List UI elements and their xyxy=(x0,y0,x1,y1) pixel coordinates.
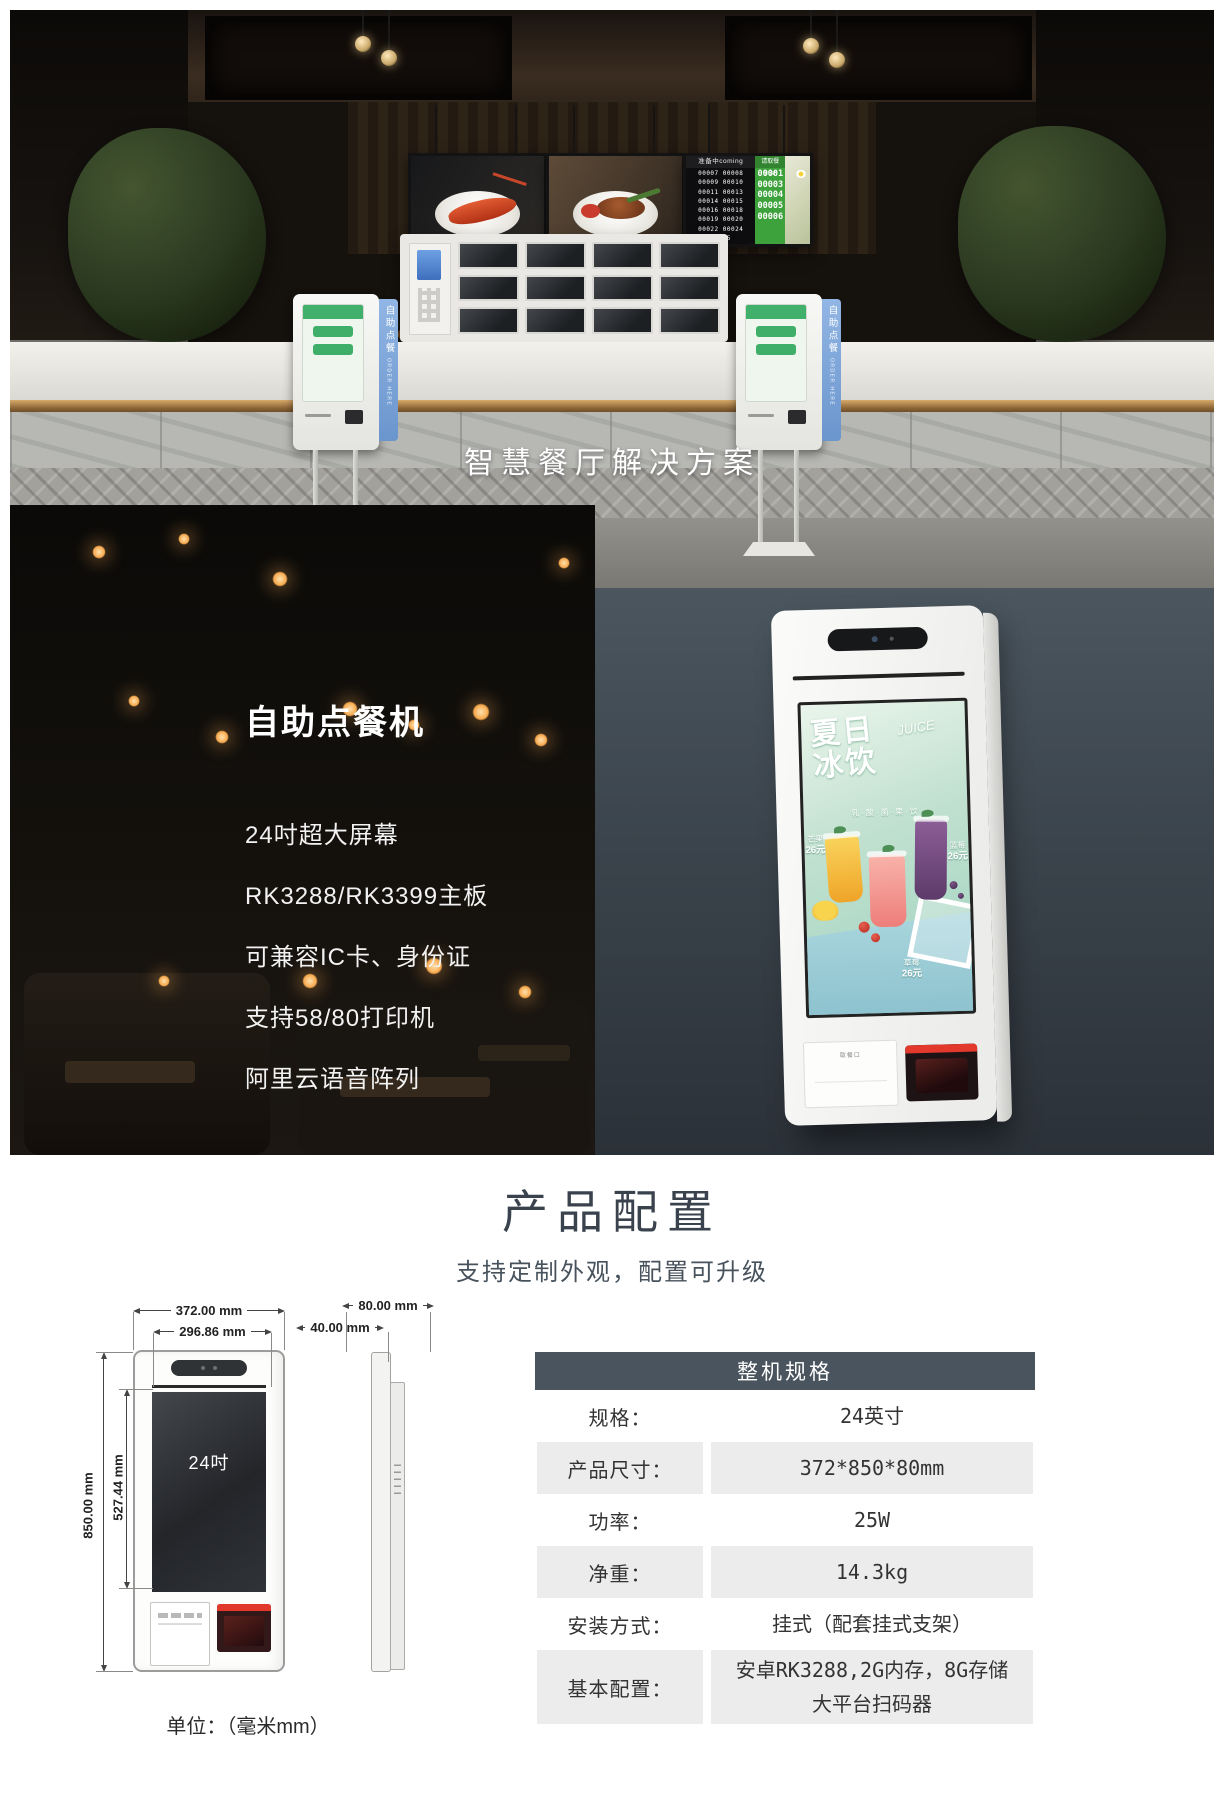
feature-item: 支持58/80打印机 xyxy=(245,998,488,1033)
spec-value: 14.3kg xyxy=(711,1546,1033,1598)
order-here-banner: 自助点餐 ORDER HERE xyxy=(379,299,398,441)
dimension-height-outer-line xyxy=(99,1352,108,1672)
locker-control-panel xyxy=(409,243,451,335)
pendant-light xyxy=(836,10,838,54)
hero-title: 智慧餐厅解决方案 xyxy=(10,438,1214,482)
printer-panel xyxy=(150,1602,210,1666)
spec-label: 规格： xyxy=(537,1390,703,1442)
feature-item: 阿里云语音阵列 xyxy=(245,1059,488,1094)
front-view-drawing: 24吋 xyxy=(133,1350,285,1672)
config-title: 产品配置 xyxy=(0,1176,1224,1242)
dimension-width-screen: 296.86 mm xyxy=(153,1324,272,1339)
spec-row: 功率： 25W xyxy=(535,1494,1035,1546)
pendant-light xyxy=(810,10,812,40)
kiosk-floor-base xyxy=(743,542,815,556)
pendant-light xyxy=(362,10,364,38)
plant-right xyxy=(958,126,1166,342)
banner-text-en: ORDER HERE xyxy=(829,358,835,406)
kiosk-display: 夏日 冰饮 JUICE 乳·酸·菌·果·饮 芒果26元 xyxy=(797,698,976,1019)
ceiling-panel xyxy=(205,16,512,100)
spec-label: 产品尺寸： xyxy=(537,1442,703,1494)
camera-bar xyxy=(827,627,928,652)
kiosk-screen xyxy=(745,304,807,402)
price-tag-mango: 芒果26元 xyxy=(804,835,827,858)
product-title: 自助点餐机 xyxy=(245,695,425,744)
poster-title: 夏日 冰饮 xyxy=(809,712,899,783)
banner-text-cn: 自助点餐 xyxy=(382,305,396,355)
queue-coming-header: 准备中coming xyxy=(686,156,755,168)
queue-finish-header: 请取餐finish xyxy=(755,156,785,168)
spec-label: 基本配置： xyxy=(537,1650,703,1724)
scanner-window xyxy=(345,410,363,424)
unit-label: 单位：（毫米mm） xyxy=(128,1710,368,1739)
pendant-light xyxy=(388,10,390,52)
feature-item: RK3288/RK3399主板 xyxy=(245,876,488,911)
mango-fruit xyxy=(812,900,839,921)
spec-row: 安装方式： 挂式（配套挂式支架） xyxy=(535,1598,1035,1650)
queue-finish-panel: 请取餐finish 00001 00003 00004 00005 00006 xyxy=(755,156,785,244)
queue-number-board: 准备中coming 00007 00008 00009 00010 00011 … xyxy=(683,153,813,247)
spec-row: 基本配置： 安卓RK3288,2G内存，8G存储 大平台扫码器 xyxy=(535,1650,1035,1724)
dimension-depth-body: 40.00 mm xyxy=(296,1320,384,1335)
locker-keypad xyxy=(418,288,440,322)
screen-area: 24吋 xyxy=(152,1392,266,1592)
spec-table-header: 整机规格 xyxy=(535,1352,1035,1390)
spec-label: 净重： xyxy=(537,1546,703,1598)
top-slot xyxy=(793,672,965,681)
config-subtitle: 支持定制外观，配置可升级 xyxy=(0,1252,1224,1287)
product-intro-panel: 自助点餐机 24吋超大屏幕 RK3288/RK3399主板 可兼容IC卡、身份证… xyxy=(10,505,595,1155)
queue-board-food-photo xyxy=(785,156,810,244)
self-order-kiosk-right: 自助点餐 ORDER HERE xyxy=(736,294,822,450)
menu-board-steak xyxy=(546,153,685,247)
printer-slot xyxy=(305,414,331,417)
receipt-printer-panel: 取餐口 xyxy=(803,1040,899,1109)
steak-dish-photo xyxy=(549,156,682,244)
hero-restaurant-image: 准备中coming 00007 00008 00009 00010 00011 … xyxy=(10,10,1214,588)
spec-value: 25W xyxy=(711,1494,1033,1546)
screen-size-label: 24吋 xyxy=(188,1449,229,1475)
product-kiosk: 夏日 冰饮 JUICE 乳·酸·菌·果·饮 芒果26元 xyxy=(771,605,997,1126)
top-slot xyxy=(152,1385,266,1388)
dimension-width-outer: 372.00 mm xyxy=(133,1303,285,1318)
strawberry-drink-cup xyxy=(869,854,907,927)
side-view-drawing xyxy=(371,1352,409,1674)
spec-table: 整机规格 规格： 24英寸 产品尺寸： 372*850*80mm 功率： 25W… xyxy=(535,1352,1035,1724)
spec-row: 规格： 24英寸 xyxy=(535,1390,1035,1442)
spec-label: 功率： xyxy=(537,1494,703,1546)
dimension-depth-total: 80.00 mm xyxy=(342,1298,434,1313)
queue-coming-numbers: 00007 00008 00009 00010 00011 00013 0001… xyxy=(686,168,755,244)
feature-list: 24吋超大屏幕 RK3288/RK3399主板 可兼容IC卡、身份证 支持58/… xyxy=(245,815,488,1120)
dimension-height-outer: 850.00 mm xyxy=(81,1461,96,1551)
scanner-window xyxy=(217,1604,271,1652)
product-photo-panel: 夏日 冰饮 JUICE 乳·酸·菌·果·饮 芒果26元 xyxy=(595,588,1214,1155)
spec-row: 净重： 14.3kg xyxy=(535,1546,1035,1598)
spec-value: 24英寸 xyxy=(711,1390,1033,1442)
price-tag-blueberry: 蓝莓26元 xyxy=(946,841,969,864)
spec-row: 产品尺寸： 372*850*80mm xyxy=(535,1442,1035,1494)
scanner-window xyxy=(788,410,806,424)
queue-finish-numbers: 00001 00003 00004 00005 00006 xyxy=(755,168,785,244)
camera-bar xyxy=(171,1360,247,1376)
lobster-dish-photo xyxy=(411,156,544,244)
plant-left xyxy=(68,128,266,342)
banner-text-en: ORDER HERE xyxy=(386,358,392,406)
poster-juice-script: JUICE xyxy=(896,717,936,738)
dimension-height-screen: 527.44 mm xyxy=(111,1443,126,1533)
spec-value: 372*850*80mm xyxy=(711,1442,1033,1494)
menu-board-lobster xyxy=(408,153,547,247)
scanner-window: 扫码区 xyxy=(905,1043,979,1101)
restaurant-table xyxy=(478,1045,570,1061)
spec-value: 挂式（配套挂式支架） xyxy=(711,1598,1033,1650)
printer-slot xyxy=(748,414,774,417)
self-order-kiosk-left: 自助点餐 ORDER HERE xyxy=(293,294,379,450)
mango-drink-cup xyxy=(824,835,863,904)
feature-item: 可兼容IC卡、身份证 xyxy=(245,937,488,972)
locker-screen xyxy=(417,250,441,280)
locker-cells xyxy=(458,242,720,334)
blueberry-drink-cup xyxy=(915,820,948,900)
pickup-locker-cabinet xyxy=(400,234,728,342)
price-tag-strawberry: 草莓26元 xyxy=(900,958,925,981)
spec-value: 安卓RK3288,2G内存，8G存储 大平台扫码器 xyxy=(711,1650,1033,1724)
restaurant-table xyxy=(65,1061,195,1083)
queue-coming-panel: 准备中coming 00007 00008 00009 00010 00011 … xyxy=(686,156,755,244)
spec-label: 安装方式： xyxy=(537,1598,703,1650)
product-page: 准备中coming 00007 00008 00009 00010 00011 … xyxy=(0,0,1224,1793)
ceiling-panel xyxy=(725,16,1032,100)
feature-item: 24吋超大屏幕 xyxy=(245,815,488,850)
bronze-trim xyxy=(10,400,1214,412)
banner-text-cn: 自助点餐 xyxy=(825,305,839,355)
marble-counter xyxy=(10,342,1214,400)
order-here-banner: 自助点餐 ORDER HERE xyxy=(822,299,841,441)
kiosk-screen xyxy=(302,304,364,402)
